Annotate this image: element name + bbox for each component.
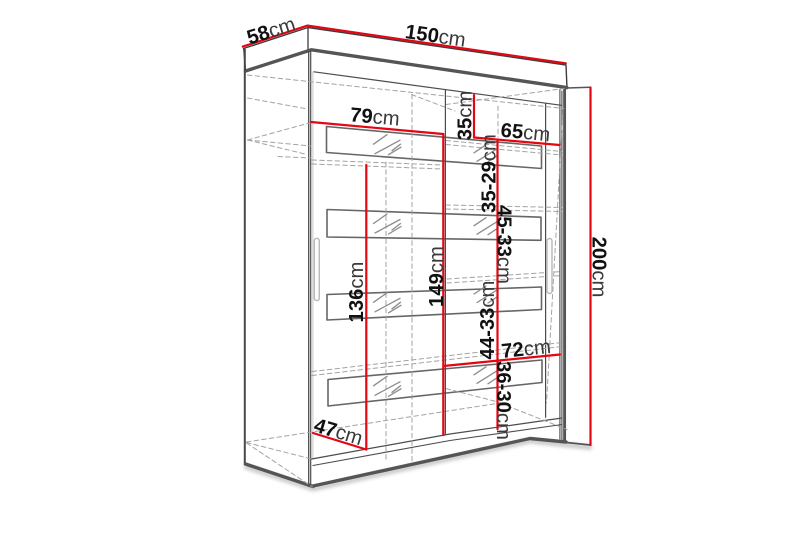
svg-text:149cm: 149cm (426, 246, 448, 307)
svg-text:79cm: 79cm (349, 104, 400, 130)
svg-text:72cm: 72cm (500, 336, 552, 363)
svg-text:35cm: 35cm (455, 91, 477, 141)
svg-text:45-33cm: 45-33cm (493, 205, 515, 284)
svg-text:200cm: 200cm (588, 237, 610, 298)
svg-text:58cm: 58cm (244, 14, 298, 50)
svg-text:150cm: 150cm (404, 21, 467, 52)
svg-text:44-33cm: 44-33cm (477, 281, 499, 360)
svg-text:136cm: 136cm (346, 262, 368, 323)
svg-text:36-30cm: 36-30cm (492, 361, 514, 440)
svg-text:47cm: 47cm (311, 415, 365, 451)
svg-text:35-29cm: 35-29cm (479, 134, 501, 213)
